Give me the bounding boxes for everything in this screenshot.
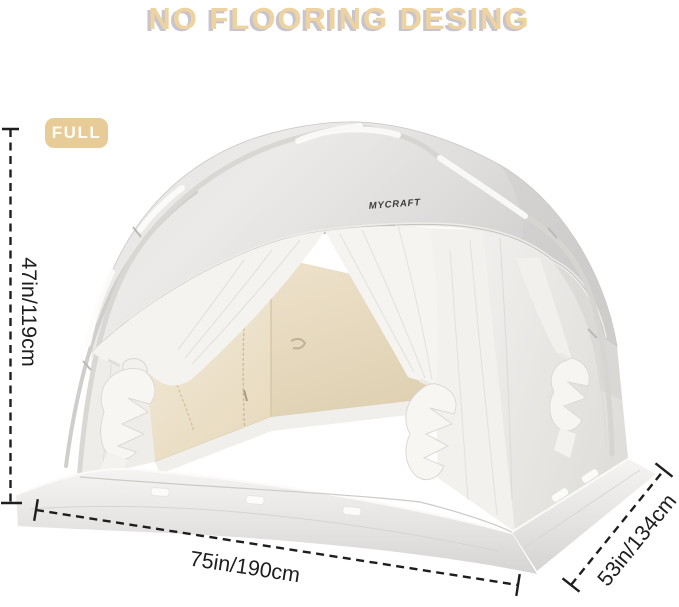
skirt-tab bbox=[246, 495, 265, 505]
skirt-tab bbox=[151, 487, 170, 496]
tent-illustration: MYCRAFT bbox=[16, 122, 656, 574]
skirt-tab bbox=[343, 506, 362, 516]
dimension-width-label: 75in/190cm bbox=[188, 547, 302, 588]
dimension-depth-cap-bottom bbox=[563, 578, 580, 591]
dimension-height: 47in/119cm bbox=[1, 129, 41, 503]
dimension-height-label: 47in/119cm bbox=[17, 257, 41, 367]
product-image: NO FLOORING DESING FULL bbox=[0, 0, 679, 607]
dimension-depth-cap-top bbox=[656, 463, 673, 476]
dimension-width-cap-right bbox=[516, 574, 519, 596]
tent-diagram: MYCRAFT bbox=[0, 0, 679, 607]
